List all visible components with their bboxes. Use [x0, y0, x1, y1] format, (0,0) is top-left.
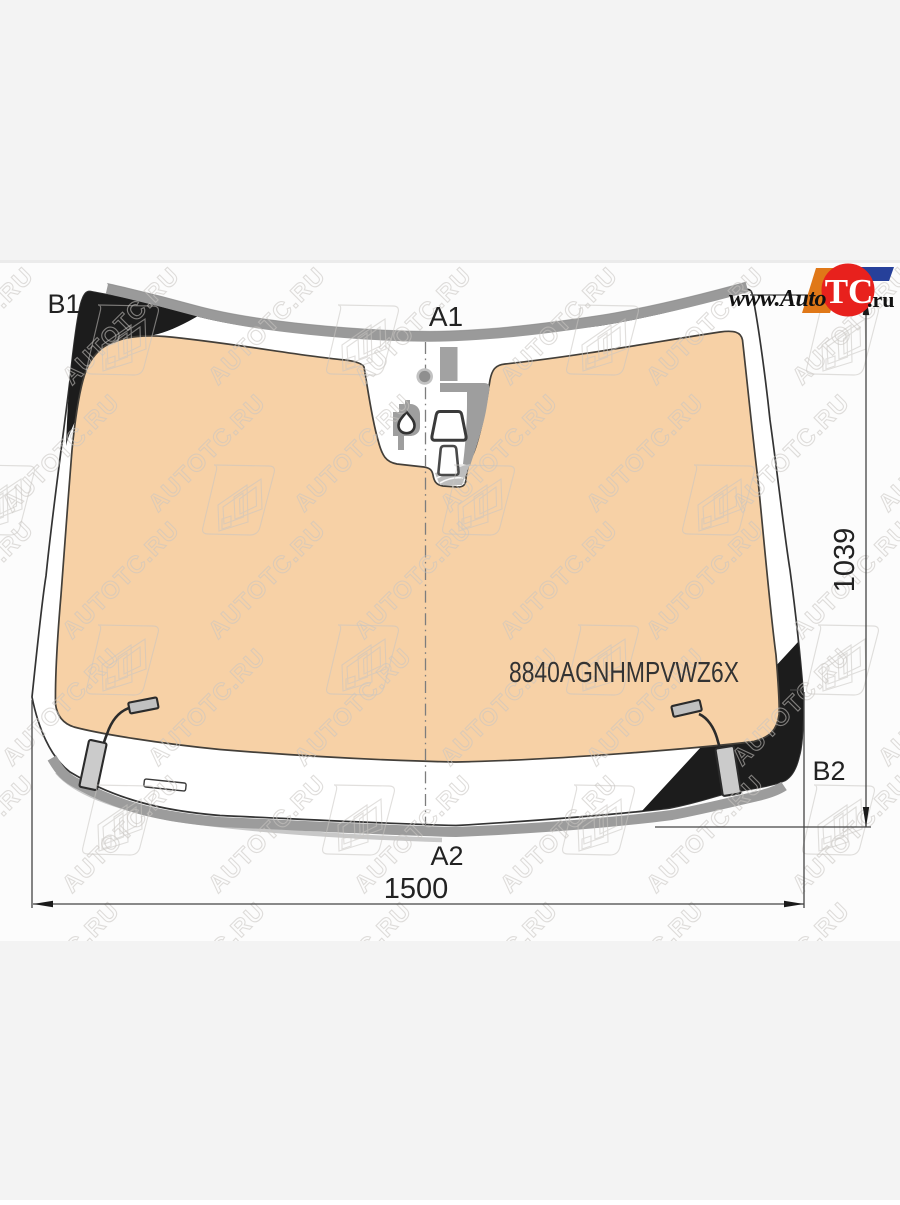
- svg-text:1039: 1039: [829, 528, 861, 593]
- svg-text:www.Auto: www.Auto: [729, 286, 827, 312]
- svg-text:A1: A1: [429, 301, 463, 332]
- svg-text:8840AGNHMPVWZ6X: 8840AGNHMPVWZ6X: [509, 657, 739, 689]
- svg-text:B1: B1: [47, 289, 80, 319]
- svg-text:A2: A2: [430, 841, 463, 871]
- svg-text:1500: 1500: [384, 873, 449, 905]
- svg-text:B2: B2: [812, 756, 845, 786]
- svg-text:.ru: .ru: [867, 287, 895, 312]
